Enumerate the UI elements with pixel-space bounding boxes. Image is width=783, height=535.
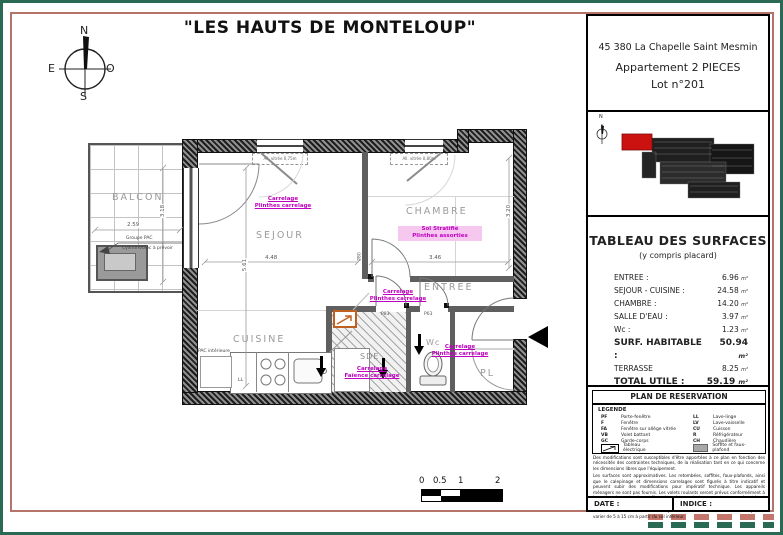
finish-note-sejour: CarrelagePlinthes carrelage bbox=[238, 196, 328, 211]
plan-sheet: "LES HAUTS DE MONTELOUP" N E O S All. vi… bbox=[0, 0, 783, 535]
project-address: 45 380 La Chapelle Saint Mesmin bbox=[588, 42, 768, 53]
drain-arrow-icon bbox=[316, 356, 327, 378]
electric-panel-legend-icon bbox=[601, 444, 619, 453]
table-row: TERRASSE8.25 m² bbox=[614, 363, 748, 376]
sejour-window-label: All. vitrée 0,75m bbox=[252, 153, 308, 165]
table-row: ENTREE :6.96 m² bbox=[614, 272, 748, 285]
pac-group-label: Groupe PAC bbox=[126, 236, 152, 241]
legend-box: LEGENDE PFPorte-fenêtre FFenêtre FAFenêt… bbox=[592, 404, 766, 454]
door-label-sde: P83 bbox=[381, 312, 389, 317]
surface-table-title: TABLEAU DES SURFACES bbox=[588, 233, 768, 248]
dim-balcon-height: 3.18 bbox=[160, 204, 166, 218]
finish-note-corridor: CarrelagePlinthes carrelage bbox=[356, 289, 440, 304]
soffit-swatch bbox=[693, 444, 709, 452]
room-label-cuisine: CUISINE bbox=[233, 334, 285, 345]
surface-table: ENTREE :6.96 m² SEJOUR - CUISINE :24.58 … bbox=[614, 272, 748, 389]
room-label-pl: PL bbox=[480, 368, 495, 379]
zone-line bbox=[197, 310, 326, 311]
door-hinge bbox=[368, 274, 373, 279]
scale-tick-0: 0 bbox=[419, 476, 424, 486]
legend-title: LEGENDE bbox=[598, 407, 626, 413]
finish-note-sde: CarrelageFaïence carrelage bbox=[334, 366, 410, 381]
pac-indoor-label: PAC intérieure bbox=[198, 349, 230, 354]
compass-south-label: S bbox=[80, 90, 87, 103]
balcony-door-opening bbox=[183, 168, 199, 268]
wall bbox=[514, 130, 526, 298]
room-label-chambre: CHAMBRE bbox=[406, 206, 468, 217]
entrance-arrow-icon bbox=[528, 326, 548, 348]
finish-note-chambre: Sol StratifiéPlinthes assorties bbox=[398, 226, 482, 241]
indice-label: INDICE : bbox=[680, 500, 712, 508]
scale-tick-05: 0.5 bbox=[433, 476, 447, 486]
pac-indoor-box bbox=[200, 356, 232, 388]
legend-bottom-row: Tableau électrique Soffite et faux-plafo… bbox=[601, 443, 761, 453]
room-label-sejour: SEJOUR bbox=[256, 230, 304, 241]
pac-note-label: Cylindre/bloc à prévoir bbox=[122, 246, 173, 251]
legend-column-right: LLLave-linge LVLave-vaisselle CUCuisson … bbox=[693, 415, 763, 445]
compass-west-label: O bbox=[106, 62, 115, 75]
reservation-box: PLAN DE RESERVATION LEGENDE PFPorte-fenê… bbox=[586, 385, 770, 511]
electric-panel-icon bbox=[333, 310, 357, 328]
dim-balcon-width: 2.59 bbox=[126, 222, 140, 228]
chambre-window-label: All. vitrée 0,80m bbox=[390, 153, 448, 165]
chambre-window bbox=[405, 139, 443, 153]
table-row: SEJOUR - CUISINE :24.58 m² bbox=[614, 285, 748, 298]
date-field[interactable]: DATE : bbox=[586, 496, 674, 512]
scale-bar bbox=[421, 489, 503, 502]
apartment-type: Appartement 2 PIECES bbox=[588, 61, 768, 74]
partition-wall bbox=[448, 306, 514, 312]
key-plan-box: N bbox=[586, 110, 770, 217]
scale-tick-1: 1 bbox=[458, 476, 463, 486]
legend-soffit-label: Soffite et faux-plafond bbox=[712, 443, 761, 453]
watermark-green-dashes bbox=[648, 522, 774, 528]
partition-wall bbox=[362, 152, 368, 279]
scale-tick-2: 2 bbox=[495, 476, 500, 486]
table-row-habitable: SURF. HABITABLE :50.94 m² bbox=[614, 337, 748, 363]
door-label-chambre: P80 bbox=[358, 252, 363, 260]
finish-note-entree: CarrelagePlinthes carrelage bbox=[424, 344, 496, 359]
wall bbox=[458, 130, 468, 152]
dim-sejour-height: 5.61 bbox=[242, 258, 248, 272]
washing-machine-label: LL bbox=[238, 378, 243, 383]
table-row: CHAMBRE :14.20 m² bbox=[614, 298, 748, 311]
surface-table-box: TABLEAU DES SURFACES (y compris placard)… bbox=[586, 215, 770, 387]
key-plan-north-label: N bbox=[599, 114, 603, 120]
lot-number: Lot n°201 bbox=[588, 78, 768, 91]
indice-field[interactable]: INDICE : bbox=[672, 496, 770, 512]
dim-chambre-width: 3.46 bbox=[428, 255, 442, 261]
room-label-sde: SDE bbox=[360, 352, 379, 361]
legend-column-left: PFPorte-fenêtre FFenêtre FAFenêtre sur a… bbox=[601, 415, 689, 445]
table-row: Wc :1.23 m² bbox=[614, 324, 748, 337]
sejour-window bbox=[257, 139, 303, 153]
door-label-wc: P63 bbox=[424, 312, 432, 317]
balcony-area bbox=[88, 143, 189, 293]
surface-table-subtitle: (y compris placard) bbox=[588, 251, 768, 260]
key-plan-drawing bbox=[588, 112, 768, 215]
compass-east-label: E bbox=[48, 62, 55, 75]
legend-electric-label: Tableau électrique bbox=[623, 443, 663, 453]
door-hinge bbox=[444, 303, 449, 308]
room-label-balcon: BALCON bbox=[112, 192, 164, 203]
dim-sejour-width: 4.48 bbox=[264, 255, 278, 261]
reservation-header: PLAN DE RESERVATION bbox=[592, 390, 766, 404]
date-label: DATE : bbox=[594, 500, 619, 508]
compass-north-label: N bbox=[80, 24, 88, 37]
table-row: SALLE D'EAU :3.97 m² bbox=[614, 311, 748, 324]
page-title: "LES HAUTS DE MONTELOUP" bbox=[120, 18, 540, 38]
pac-unit-detail bbox=[104, 253, 136, 271]
project-info-box: 45 380 La Chapelle Saint Mesmin Appartem… bbox=[586, 14, 770, 112]
closet-line bbox=[368, 196, 514, 197]
dim-chambre-height: 3.20 bbox=[506, 204, 512, 218]
